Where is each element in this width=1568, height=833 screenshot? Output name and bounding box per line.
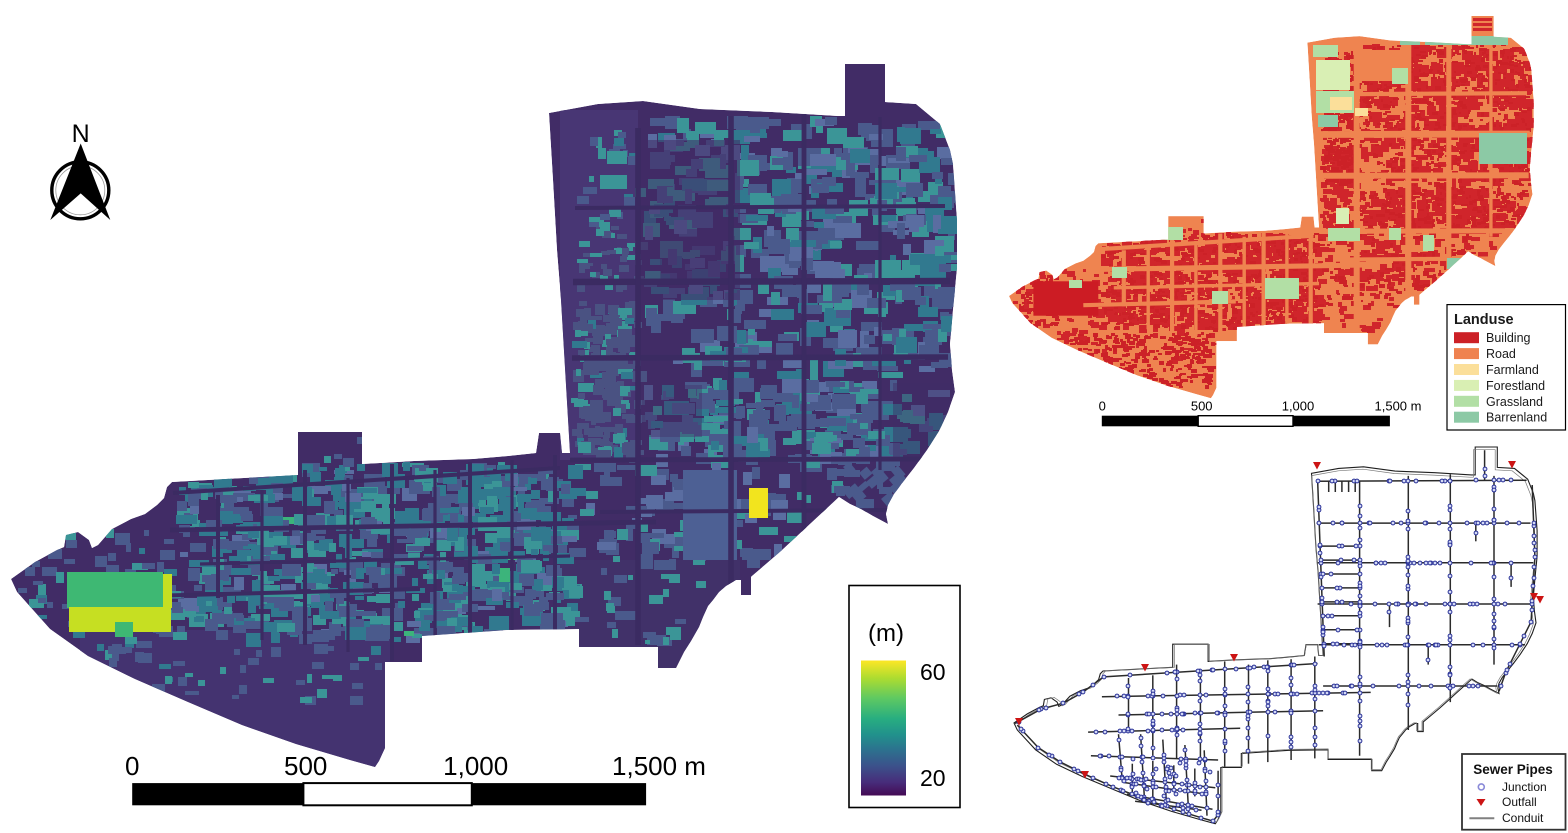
svg-text:1,500 m: 1,500 m [612, 751, 706, 781]
svg-text:20: 20 [920, 765, 946, 791]
svg-text:1,000: 1,000 [443, 751, 508, 781]
svg-text:60: 60 [920, 659, 946, 685]
svg-text:(m): (m) [868, 620, 904, 647]
svg-text:500: 500 [284, 751, 327, 781]
svg-text:0: 0 [125, 751, 139, 781]
